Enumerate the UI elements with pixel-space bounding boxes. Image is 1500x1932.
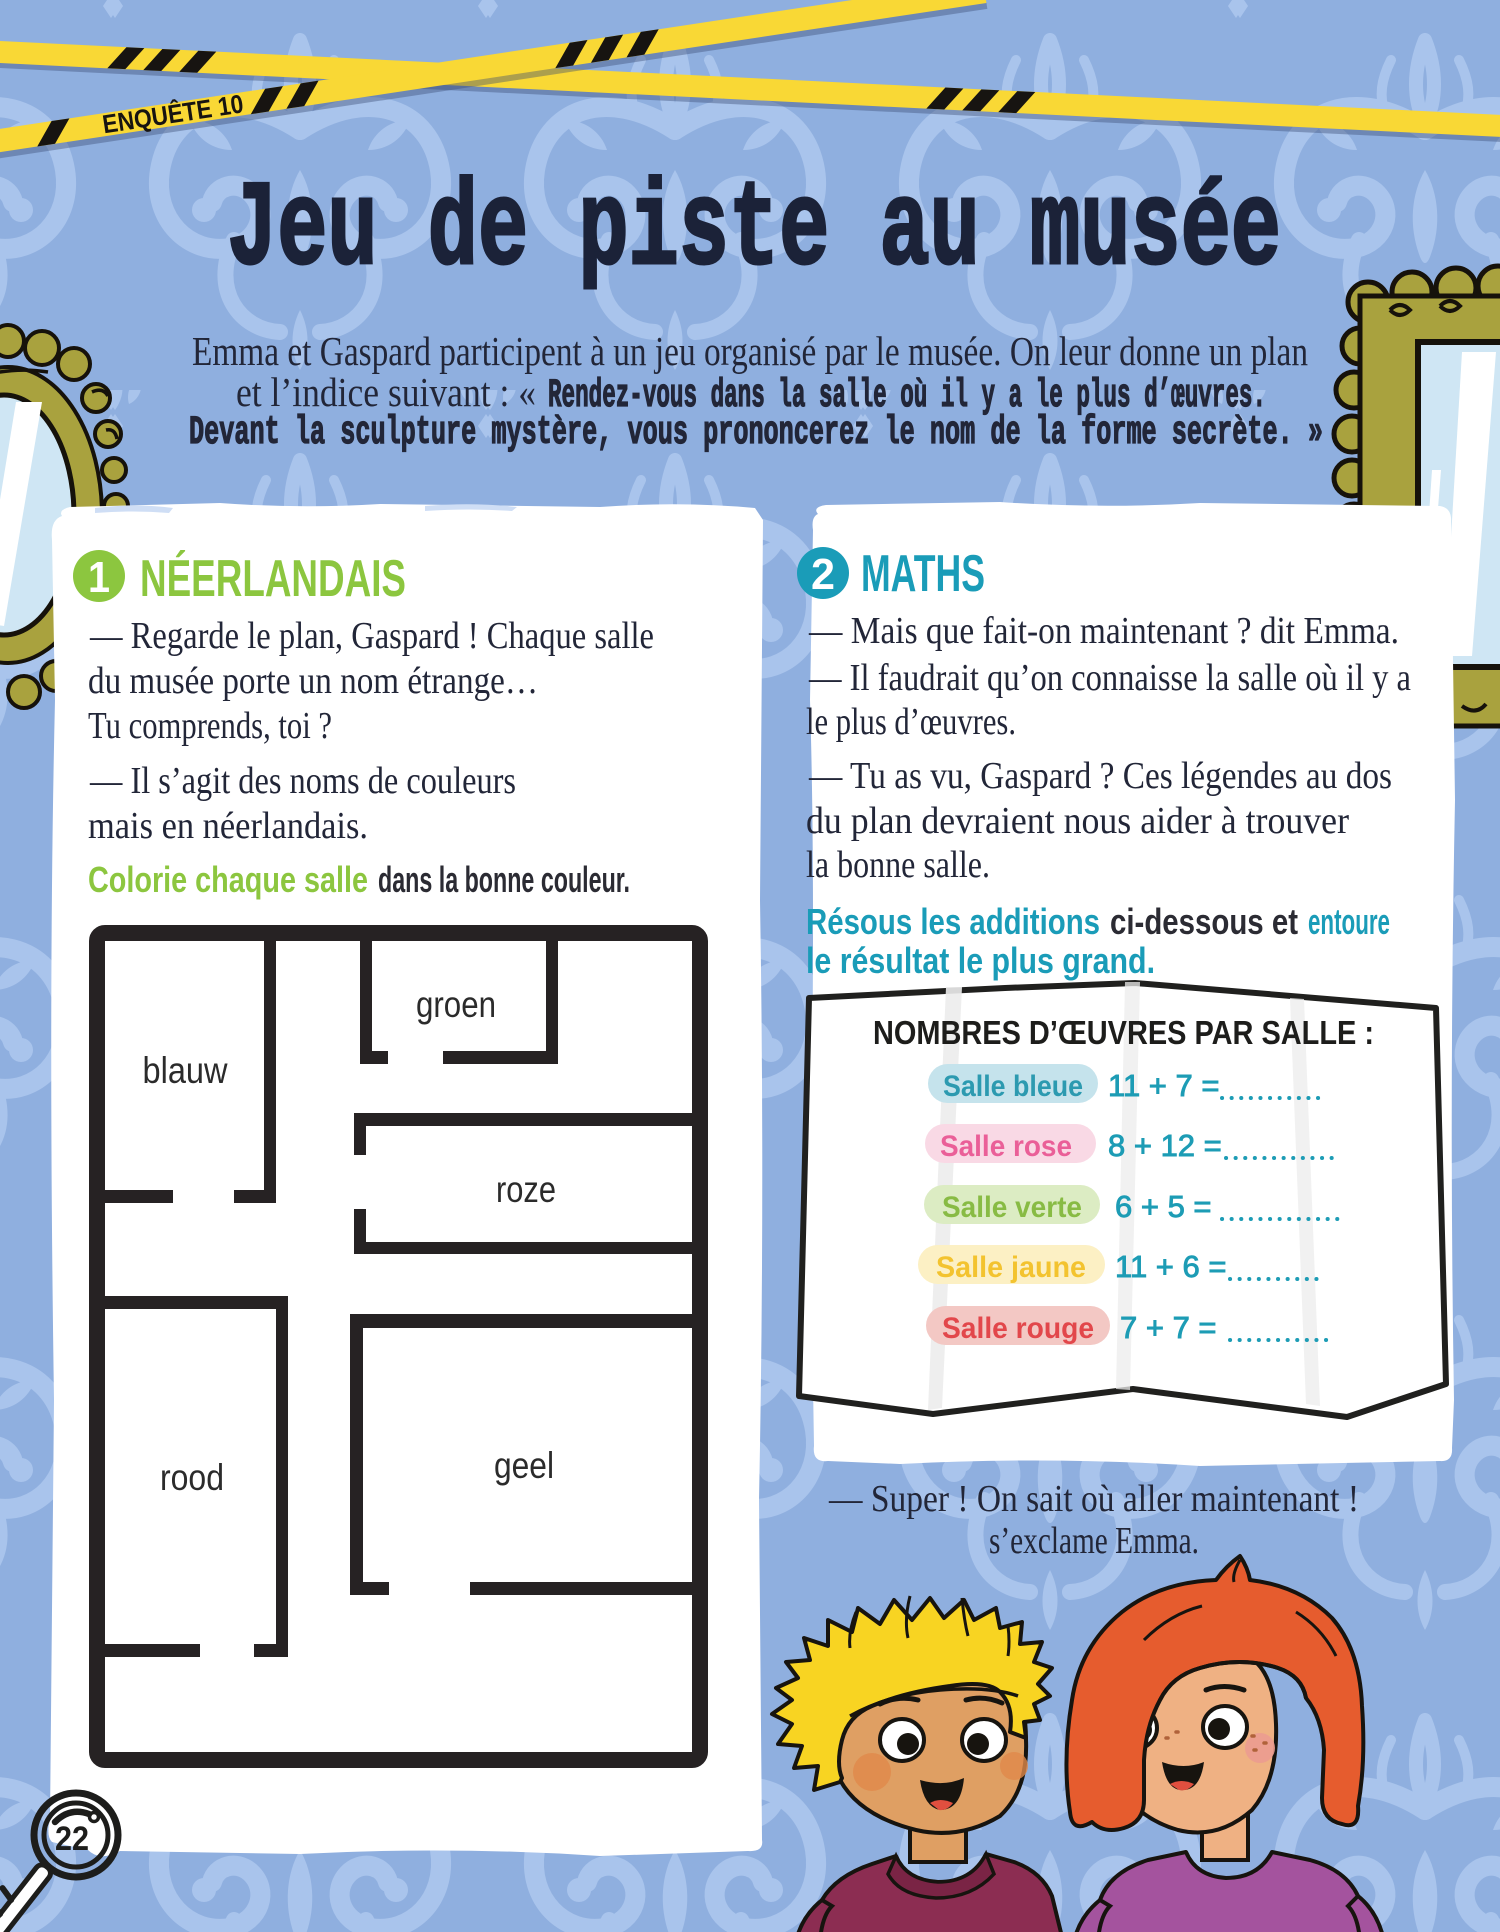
svg-text:NÉERLANDAIS: NÉERLANDAIS	[140, 550, 406, 608]
svg-text:Salle rouge: Salle rouge	[942, 1312, 1094, 1345]
svg-text:Devant la sculpture mystère, v: Devant la sculpture mystère, vous pronon…	[189, 411, 1323, 456]
svg-text:Jeu de piste au musée: Jeu de piste au musée	[227, 163, 1281, 300]
svg-text:entoure: entoure	[1308, 901, 1390, 942]
svg-text:groen: groen	[416, 984, 496, 1025]
svg-text:geel: geel	[494, 1445, 554, 1486]
svg-text:6 + 5 =: 6 + 5 =	[1115, 1189, 1212, 1224]
svg-text:rood: rood	[160, 1457, 224, 1498]
svg-text:— Super ! On sait où aller mai: — Super ! On sait où aller maintenant !	[828, 1478, 1359, 1520]
svg-text:— Il faudrait qu’on connaisse: — Il faudrait qu’on connaisse la salle o…	[808, 657, 1411, 699]
svg-text:Emma et Gaspard participent à: Emma et Gaspard participent à un jeu org…	[192, 328, 1308, 374]
svg-text:Résous les additions: Résous les additions	[806, 901, 1100, 942]
svg-text:ci-dessous et: ci-dessous et	[1110, 901, 1298, 942]
svg-text:du musée porte un nom étrange…: du musée porte un nom étrange…	[88, 660, 538, 702]
svg-text:Tu comprends, toi ?: Tu comprends, toi ?	[88, 705, 332, 747]
svg-text:le résultat le plus grand.: le résultat le plus grand.	[806, 940, 1155, 981]
svg-text:NOMBRES D’ŒUVRES PAR SALLE :: NOMBRES D’ŒUVRES PAR SALLE :	[873, 1014, 1374, 1051]
svg-text:11 + 6 =: 11 + 6 =	[1115, 1249, 1226, 1284]
svg-text:et l’indice suivant : «: et l’indice suivant : «	[236, 369, 536, 415]
svg-text:11 + 7 =: 11 + 7 =	[1108, 1068, 1219, 1103]
svg-text:du plan devraient nous aider à: du plan devraient nous aider à trouver	[806, 800, 1349, 842]
svg-text:Salle rose: Salle rose	[940, 1130, 1072, 1163]
svg-text:mais en néerlandais.: mais en néerlandais.	[88, 805, 368, 847]
svg-text:22: 22	[55, 1820, 89, 1858]
svg-text:8 + 12 =: 8 + 12 =	[1108, 1128, 1222, 1163]
svg-text:la bonne salle.: la bonne salle.	[806, 844, 990, 886]
svg-text:— Mais que fait-on maintenant: — Mais que fait-on maintenant ? dit Emma…	[808, 610, 1399, 652]
svg-text:Salle jaune: Salle jaune	[936, 1251, 1086, 1284]
svg-text:Colorie chaque salle: Colorie chaque salle	[88, 859, 368, 900]
svg-text:MATHS: MATHS	[861, 545, 985, 603]
svg-text:— Il s’agit des noms de couleu: — Il s’agit des noms de couleurs	[89, 760, 516, 802]
svg-text:1: 1	[88, 553, 110, 602]
svg-text:dans la bonne couleur.: dans la bonne couleur.	[378, 859, 630, 900]
svg-text:— Regarde le plan, Gaspard ! C: — Regarde le plan, Gaspard ! Chaque sall…	[89, 615, 654, 657]
svg-text:2: 2	[811, 550, 835, 599]
svg-text:le plus d’œuvres.: le plus d’œuvres.	[806, 701, 1016, 743]
svg-text:roze: roze	[496, 1169, 556, 1210]
svg-text:blauw: blauw	[143, 1050, 228, 1091]
svg-text:Salle verte: Salle verte	[942, 1191, 1082, 1224]
svg-text:Salle bleue: Salle bleue	[943, 1070, 1083, 1103]
svg-text:— Tu as vu, Gaspard ? Ces lége: — Tu as vu, Gaspard ? Ces légendes au do…	[808, 755, 1392, 797]
svg-text:7 + 7 =: 7 + 7 =	[1120, 1310, 1217, 1345]
svg-text:s’exclame Emma.: s’exclame Emma.	[989, 1520, 1199, 1562]
